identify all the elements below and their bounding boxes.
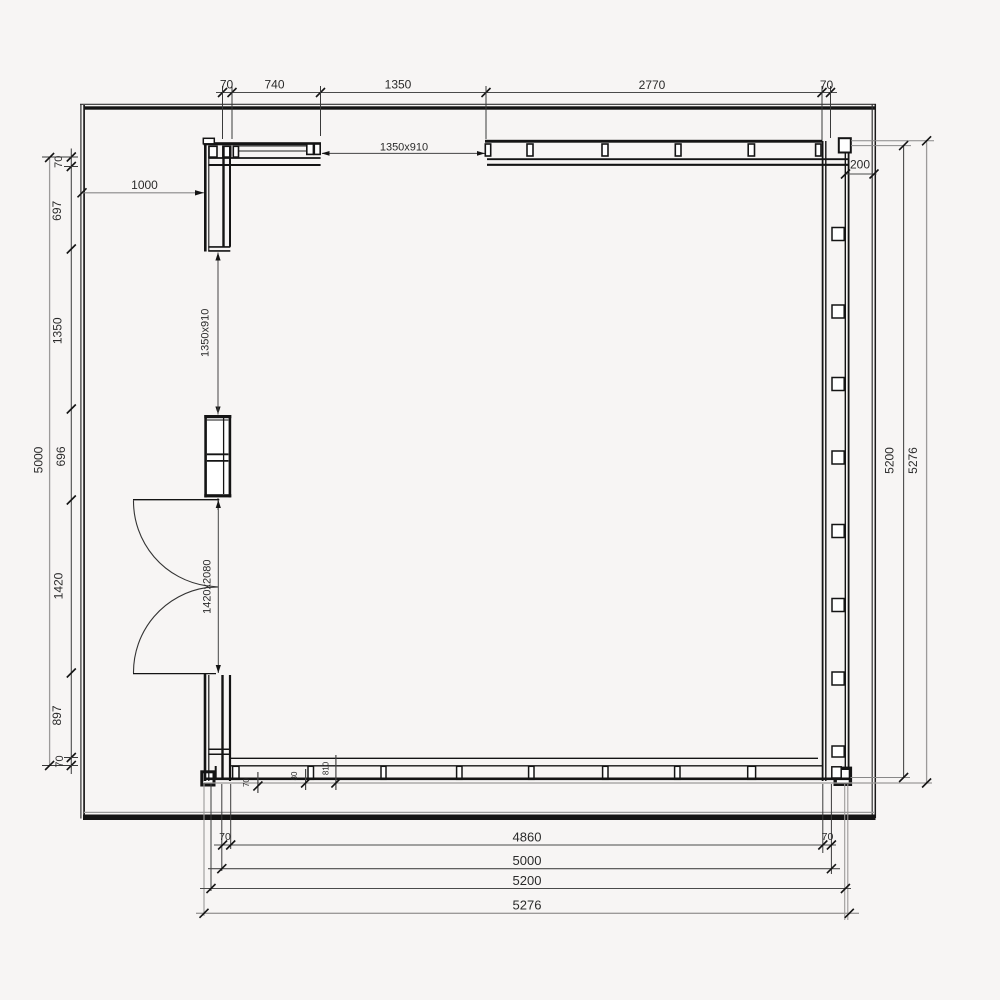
svg-text:1420: 1420 <box>52 572 66 599</box>
svg-text:5200: 5200 <box>513 873 542 888</box>
svg-text:5000: 5000 <box>32 446 46 473</box>
svg-text:5200: 5200 <box>883 447 897 474</box>
svg-text:1350: 1350 <box>385 78 412 92</box>
svg-text:897: 897 <box>50 705 64 725</box>
svg-text:70: 70 <box>54 755 66 767</box>
svg-text:5000: 5000 <box>513 853 542 868</box>
svg-text:2770: 2770 <box>639 78 666 92</box>
svg-text:740: 740 <box>264 78 284 92</box>
svg-text:696: 696 <box>54 446 68 466</box>
svg-text:1420x2080: 1420x2080 <box>202 559 214 613</box>
svg-text:70: 70 <box>53 156 65 168</box>
svg-text:70: 70 <box>242 778 251 787</box>
svg-text:80: 80 <box>290 771 299 780</box>
svg-text:5276: 5276 <box>513 898 542 913</box>
svg-text:1350x910: 1350x910 <box>200 309 212 357</box>
svg-text:70: 70 <box>822 831 834 843</box>
svg-text:810: 810 <box>322 761 331 775</box>
svg-text:4860: 4860 <box>513 830 542 845</box>
svg-text:1000: 1000 <box>131 178 158 192</box>
svg-text:70: 70 <box>220 78 234 92</box>
svg-text:1350: 1350 <box>51 317 65 344</box>
svg-text:697: 697 <box>50 200 64 220</box>
svg-text:70: 70 <box>219 831 231 843</box>
svg-text:5276: 5276 <box>906 447 920 474</box>
svg-text:70: 70 <box>820 78 834 92</box>
svg-text:1350x910: 1350x910 <box>380 142 428 154</box>
svg-text:200: 200 <box>850 158 870 172</box>
